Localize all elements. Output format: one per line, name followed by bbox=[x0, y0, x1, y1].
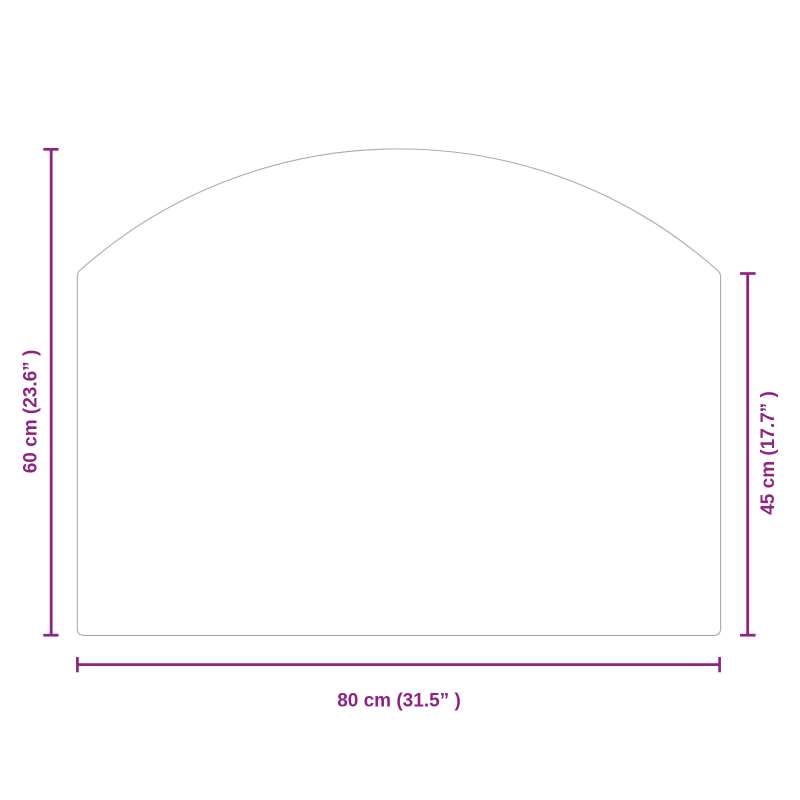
svg-text:45 cm (17.7” ): 45 cm (17.7” ) bbox=[758, 391, 779, 515]
svg-text:80 cm (31.5” ): 80 cm (31.5” ) bbox=[337, 690, 461, 711]
svg-text:60 cm (23.6” ): 60 cm (23.6” ) bbox=[21, 350, 42, 474]
